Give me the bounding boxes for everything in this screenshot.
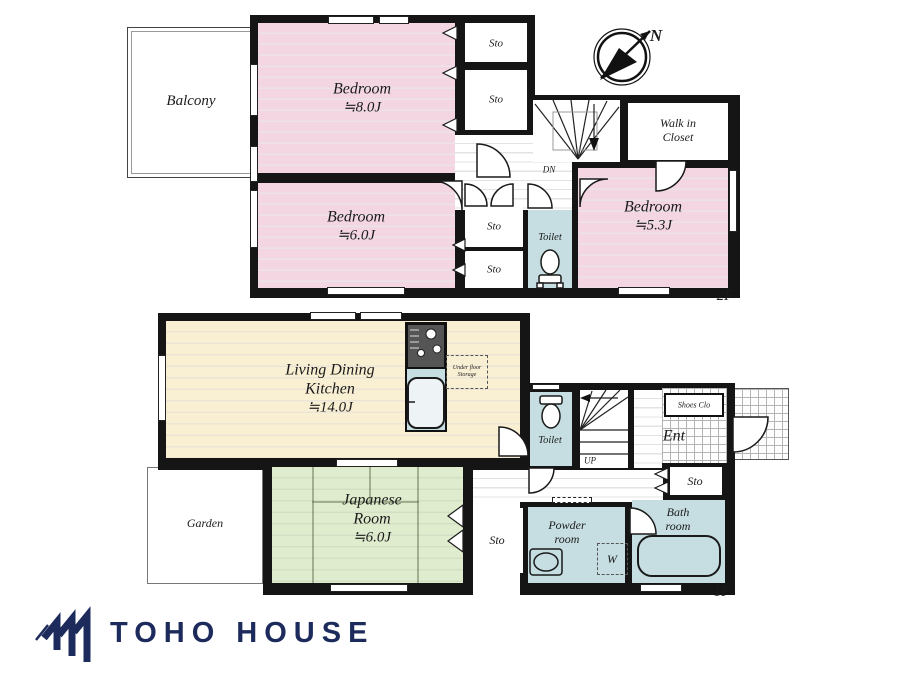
window-mark xyxy=(532,384,560,390)
hall-entrance xyxy=(634,390,662,468)
window-mark xyxy=(729,170,737,232)
floor-1f-label: 1F xyxy=(714,584,731,602)
kitchen-counter xyxy=(405,322,447,432)
sto-small-upper-label: Sto xyxy=(487,221,501,234)
stairs-dn-label: DN xyxy=(543,165,556,176)
jp-line1: Japanese xyxy=(342,491,402,510)
window-mark xyxy=(640,584,682,592)
bath-line2: room xyxy=(666,519,691,533)
shoes-closet-label: Shoes Clo xyxy=(678,400,710,409)
powder-room-label: Powder room xyxy=(548,518,585,546)
ldk-line2: Kitchen xyxy=(285,380,374,399)
japanese-room-label: Japanese Room ≒6.0J xyxy=(342,491,402,546)
jp-size: ≒6.0J xyxy=(342,529,402,547)
compass-icon xyxy=(594,29,650,85)
stairs-up-label: UP xyxy=(584,456,596,467)
toho-house-logo-text: TOHO HOUSE xyxy=(110,617,374,650)
sto-entrance-label: Sto xyxy=(687,474,702,488)
bedroom6-label: Bedroom ≒6.0J xyxy=(327,209,385,246)
compass-north-label: N xyxy=(650,26,662,46)
window-mark xyxy=(330,584,408,592)
window-mark xyxy=(250,146,258,182)
ldk-line1: Living Dining xyxy=(285,361,374,380)
powder-line1: Powder xyxy=(548,518,585,532)
walk-in-closet-label: Walk in Closet xyxy=(660,116,696,144)
ldk-size: ≒14.0J xyxy=(285,399,374,417)
bath-line1: Bath xyxy=(666,505,691,519)
window-mark xyxy=(336,459,398,467)
powder-line2: room xyxy=(548,532,585,546)
window-mark xyxy=(327,287,405,295)
window-mark xyxy=(552,497,592,503)
bedroom8-name: Bedroom xyxy=(333,81,391,100)
window-mark xyxy=(158,355,166,421)
bedroom53-name: Bedroom xyxy=(624,199,682,218)
jp-line2: Room xyxy=(342,510,402,529)
toilet-1f-label: Toilet xyxy=(538,435,562,447)
sto-small-lower-label: Sto xyxy=(487,264,501,277)
entrance-porch xyxy=(733,388,789,460)
window-mark xyxy=(328,16,374,24)
floor-2f-label: 2F xyxy=(717,288,734,306)
bedroom53-label: Bedroom ≒5.3J xyxy=(624,199,682,236)
under-floor-storage-label: Under floor Storage xyxy=(453,365,482,379)
toilet-2f-label: Toilet xyxy=(538,232,562,244)
bedroom53-size: ≒5.3J xyxy=(624,218,682,236)
tatami-line xyxy=(312,467,314,583)
washer-label: W xyxy=(607,552,617,566)
entrance-label: Ent xyxy=(663,428,685,447)
room-toilet-2f xyxy=(528,210,572,288)
window-mark xyxy=(250,190,258,248)
sto-top-label: Sto xyxy=(489,38,503,51)
sto-mid-label: Sto xyxy=(489,94,503,107)
wic-line1: Walk in xyxy=(660,116,696,130)
wic-line2: Closet xyxy=(660,130,696,144)
stairs-2f xyxy=(533,100,620,162)
window-mark xyxy=(360,312,402,320)
garden-label: Garden xyxy=(187,516,223,530)
bedroom8-size: ≒8.0J xyxy=(333,100,391,118)
bedroom8-label: Bedroom ≒8.0J xyxy=(333,81,391,118)
bedroom6-name: Bedroom xyxy=(327,209,385,228)
ldk-label: Living Dining Kitchen ≒14.0J xyxy=(285,361,374,416)
toho-house-logo-icon xyxy=(34,602,94,666)
sto-hall-label: Sto xyxy=(489,533,504,547)
window-mark xyxy=(250,64,258,116)
window-mark xyxy=(379,16,409,24)
window-mark xyxy=(310,312,356,320)
tatami-line xyxy=(417,467,419,583)
bath-room-label: Bath room xyxy=(666,505,691,533)
room-toilet-1f xyxy=(530,392,572,466)
bedroom6-size: ≒6.0J xyxy=(327,228,385,246)
ufs-line2: Storage xyxy=(453,372,482,379)
floor-plan-canvas: Balcony Bedroom ≒8.0J Sto Sto Walk in Cl… xyxy=(0,0,904,678)
window-mark xyxy=(618,287,670,295)
balcony-label: Balcony xyxy=(166,93,215,111)
ufs-line1: Under floor xyxy=(453,365,482,372)
